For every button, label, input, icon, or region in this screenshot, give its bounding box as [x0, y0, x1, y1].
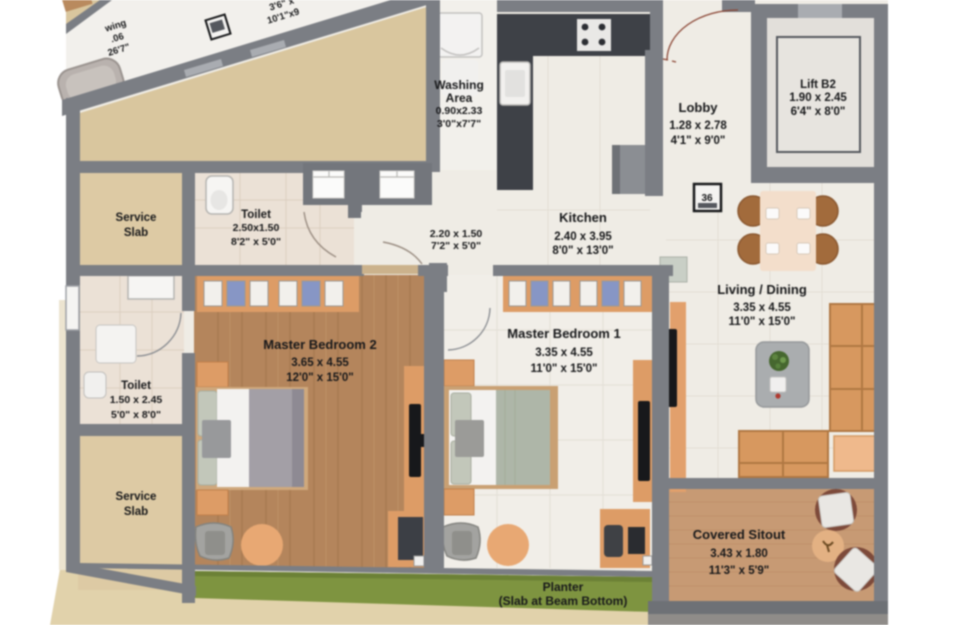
svg-text:3'0"x7'7": 3'0"x7'7" [437, 118, 481, 130]
svg-text:Service: Service [116, 212, 157, 224]
svg-text:2.50x1.50: 2.50x1.50 [233, 222, 280, 234]
svg-text:6'4" x 8'0": 6'4" x 8'0" [791, 106, 846, 118]
svg-text:3.35 x 4.55: 3.35 x 4.55 [535, 347, 593, 359]
svg-text:2.40 x 3.95: 2.40 x 3.95 [554, 231, 612, 243]
svg-text:3.35 x 4.55: 3.35 x 4.55 [733, 302, 791, 314]
svg-text:Service: Service [116, 491, 157, 503]
svg-text:(Slab at Beam Bottom): (Slab at Beam Bottom) [499, 594, 628, 608]
svg-text:7'2" x 5'0": 7'2" x 5'0" [431, 240, 481, 252]
svg-text:Kitchen: Kitchen [559, 210, 607, 225]
svg-text:Lift B2: Lift B2 [800, 79, 836, 91]
svg-text:1.28 x 2.78: 1.28 x 2.78 [669, 120, 727, 132]
svg-text:Toilet: Toilet [241, 209, 271, 221]
svg-text:1.50 x 2.45: 1.50 x 2.45 [110, 394, 163, 406]
svg-text:4'1" x 9'0": 4'1" x 9'0" [671, 135, 726, 147]
svg-text:11'3" x 5'9": 11'3" x 5'9" [709, 565, 770, 577]
svg-text:0.90x2.33: 0.90x2.33 [436, 105, 483, 117]
svg-text:Covered Sitout: Covered Sitout [693, 527, 786, 542]
svg-text:3.65 x 4.55: 3.65 x 4.55 [291, 357, 349, 369]
svg-text:Master Bedroom 1: Master Bedroom 1 [507, 326, 620, 341]
svg-text:2.20 x 1.50: 2.20 x 1.50 [430, 228, 483, 240]
svg-text:36: 36 [701, 193, 713, 204]
svg-text:3.43 x 1.80: 3.43 x 1.80 [710, 548, 768, 560]
svg-text:Lobby: Lobby [679, 100, 719, 115]
svg-text:Slab: Slab [124, 227, 148, 239]
svg-text:12'0" x 15'0": 12'0" x 15'0" [286, 372, 354, 384]
svg-text:Toilet: Toilet [121, 380, 151, 392]
svg-text:Slab: Slab [124, 506, 148, 518]
svg-text:Area: Area [446, 91, 473, 105]
svg-text:11'0" x 15'0": 11'0" x 15'0" [729, 316, 796, 328]
svg-text:1.90 x 2.45: 1.90 x 2.45 [789, 92, 847, 104]
svg-text:Planter: Planter [543, 580, 584, 594]
svg-text:Washing: Washing [434, 78, 484, 92]
svg-text:Living / Dining: Living / Dining [717, 282, 807, 297]
svg-text:11'0" x 15'0": 11'0" x 15'0" [531, 363, 598, 375]
svg-text:Master Bedroom 2: Master Bedroom 2 [263, 337, 376, 352]
svg-text:5'0" x 8'0": 5'0" x 8'0" [111, 409, 161, 421]
svg-text:8'2" x 5'0": 8'2" x 5'0" [231, 236, 281, 248]
svg-text:8'0" x 13'0": 8'0" x 13'0" [552, 245, 613, 257]
